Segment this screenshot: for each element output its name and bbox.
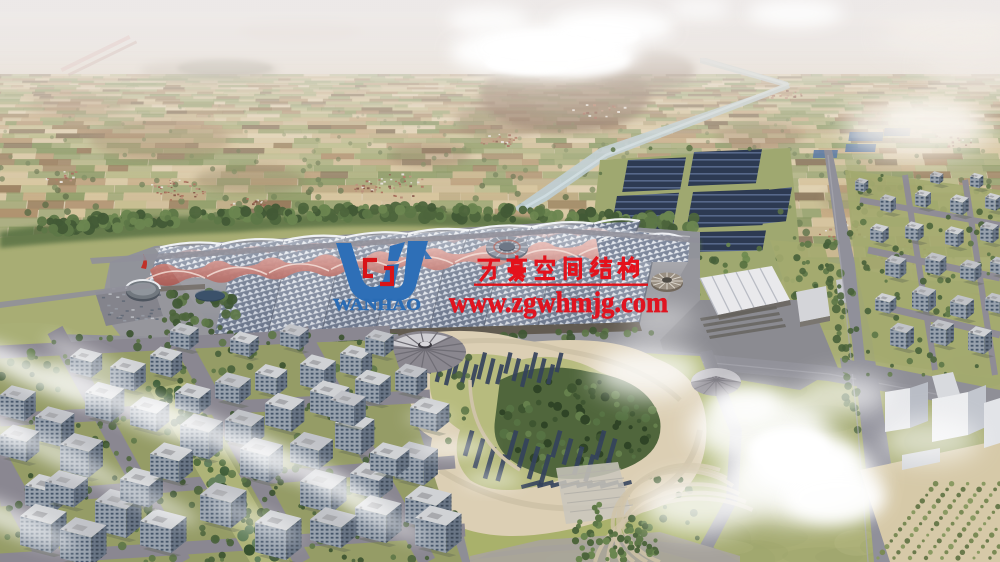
svg-text:www.zgwhmjg.com: www.zgwhmjg.com xyxy=(449,286,668,319)
svg-text:WANHAO: WANHAO xyxy=(333,295,421,314)
